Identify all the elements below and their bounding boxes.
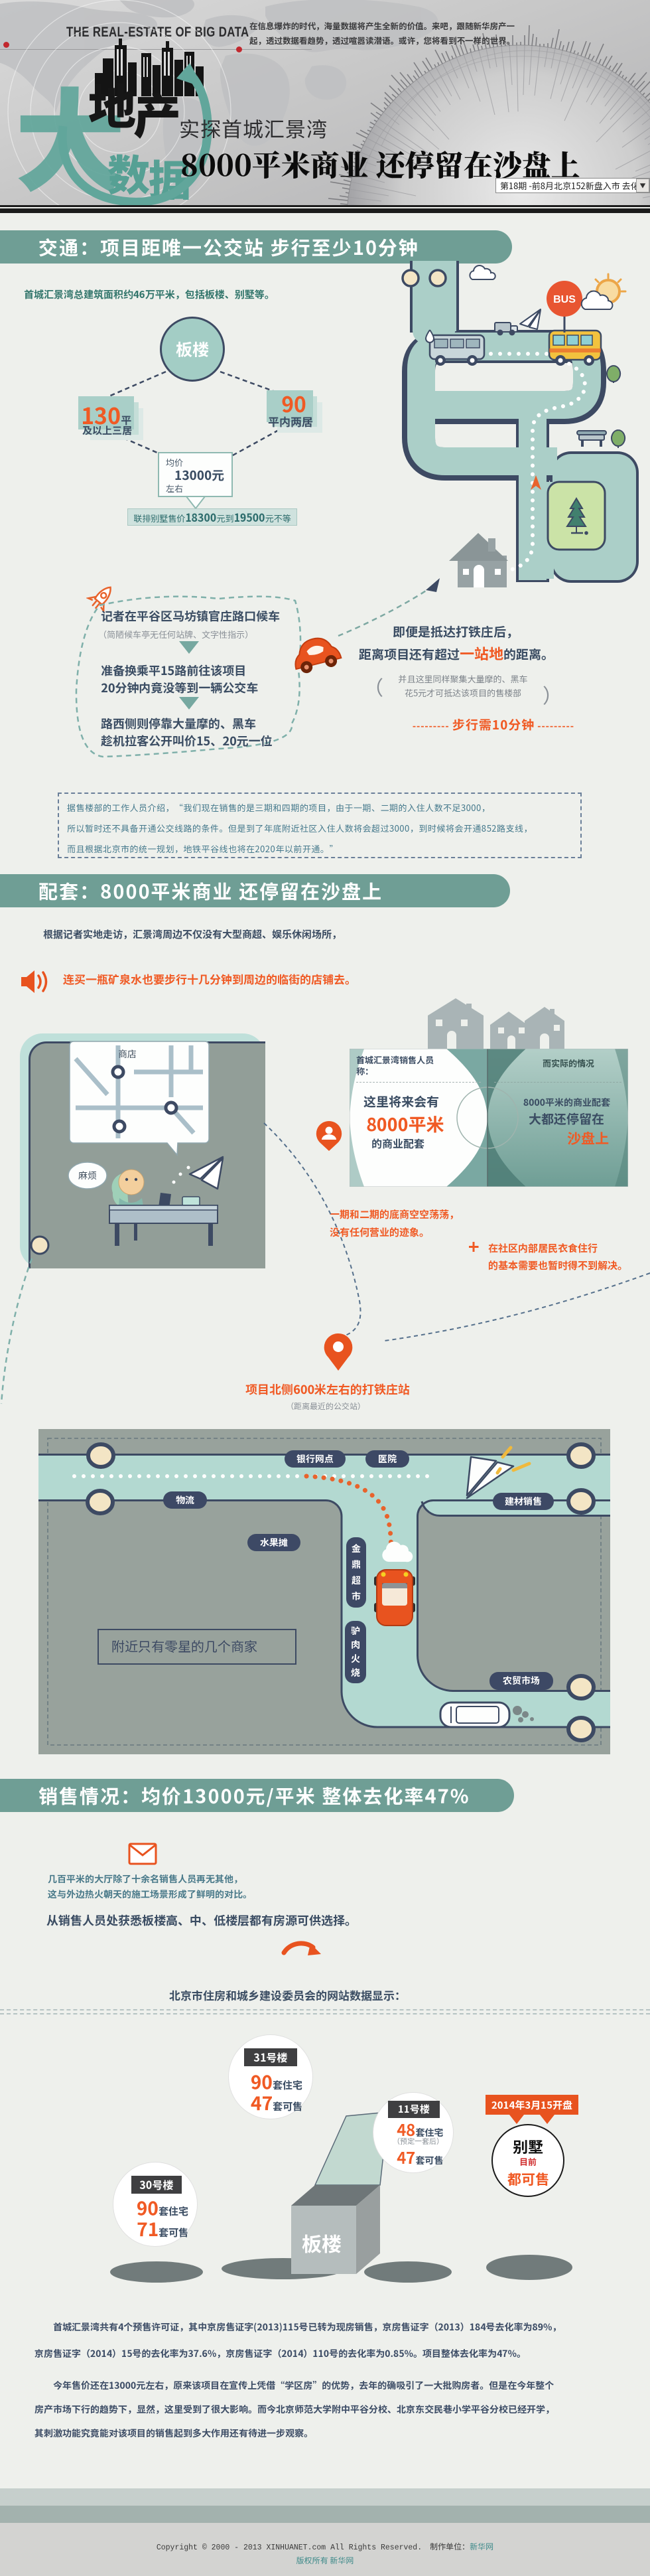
svg-text:BUS: BUS <box>553 294 576 305</box>
svg-text:麻烦: 麻烦 <box>78 1169 97 1182</box>
svg-text:2014年3月15开盘: 2014年3月15开盘 <box>491 2098 572 2112</box>
svg-text:板楼: 板楼 <box>302 2228 342 2257</box>
svg-text:商店: 商店 <box>118 1047 137 1061</box>
svg-text:附近只有零星的几个商家: 附近只有零星的几个商家 <box>111 1636 257 1655</box>
